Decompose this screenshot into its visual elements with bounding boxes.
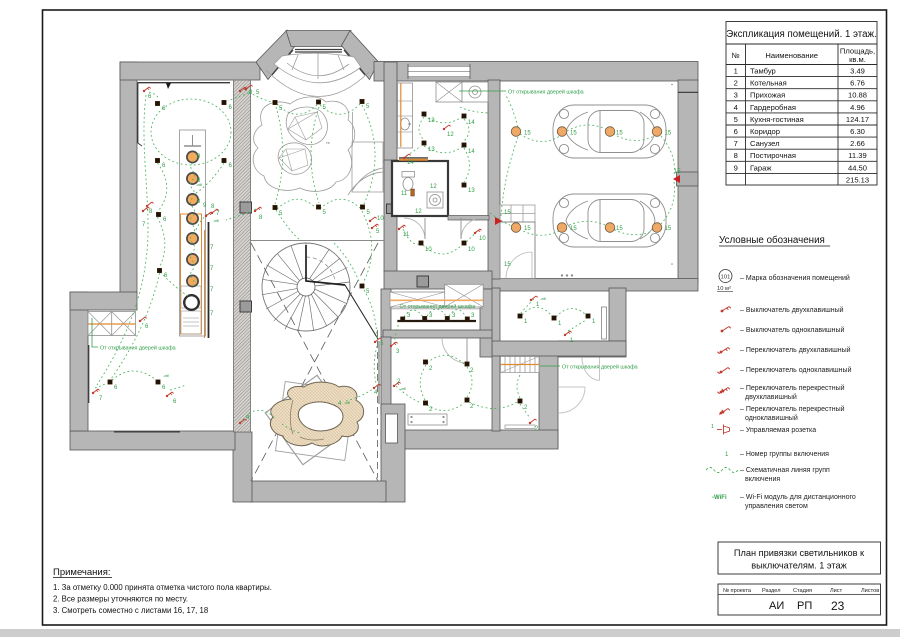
svg-text:-WiFi: -WiFi bbox=[712, 495, 727, 501]
svg-text:Кухня-гостиная: Кухня-гостиная bbox=[750, 115, 804, 124]
svg-text:12: 12 bbox=[430, 184, 437, 190]
svg-text:Условные обозначения: Условные обозначения bbox=[719, 235, 825, 246]
svg-text:1. За отметку 0.000 принята: 1. За отметку 0.000 принята отметка чист… bbox=[53, 583, 272, 592]
svg-text:8: 8 bbox=[734, 151, 738, 160]
svg-text:3. Смотреть соместно с листа: 3. Смотреть соместно с листами 16, 17, 1… bbox=[53, 606, 208, 615]
svg-text:15: 15 bbox=[616, 226, 623, 232]
svg-text:-wifi: -wifi bbox=[196, 183, 202, 187]
svg-text:14: 14 bbox=[407, 160, 414, 166]
svg-text:10.88: 10.88 bbox=[848, 91, 867, 100]
svg-text:Постирочная: Постирочная bbox=[750, 151, 796, 160]
svg-text:– Марка обозначения помещений: – Марка обозначения помещений bbox=[740, 274, 850, 282]
svg-text:13: 13 bbox=[468, 188, 475, 194]
svg-text:15: 15 bbox=[665, 131, 672, 137]
svg-text:7: 7 bbox=[734, 139, 738, 148]
svg-text:3.49: 3.49 bbox=[850, 67, 865, 76]
svg-text:10: 10 bbox=[377, 216, 384, 222]
svg-text:4: 4 bbox=[734, 103, 738, 112]
svg-text:2. Все размеры уточняются по: 2. Все размеры уточняются по месту. bbox=[53, 595, 188, 604]
svg-text:Наименование: Наименование bbox=[765, 51, 818, 60]
svg-text:– Управляемая розетка: – Управляемая розетка bbox=[740, 427, 816, 434]
svg-text:6: 6 bbox=[734, 127, 738, 136]
svg-text:14: 14 bbox=[468, 120, 475, 126]
svg-text:215.13: 215.13 bbox=[846, 175, 869, 184]
svg-text:От открывания дверей шкафа: От открывания дверей шкафа bbox=[508, 89, 584, 96]
svg-text:-wifi: -wifi bbox=[540, 297, 546, 301]
svg-text:15: 15 bbox=[616, 131, 623, 137]
svg-text:-wifi: -wifi bbox=[213, 219, 219, 223]
svg-text:23: 23 bbox=[831, 599, 845, 613]
svg-text:Лист: Лист bbox=[830, 588, 843, 594]
svg-text:101: 101 bbox=[721, 275, 731, 281]
svg-text:13: 13 bbox=[428, 118, 435, 124]
svg-text:АИ: АИ bbox=[769, 600, 784, 612]
svg-text:Тамбур: Тамбур bbox=[750, 67, 776, 76]
svg-text:Гараж: Гараж bbox=[750, 163, 772, 172]
svg-text:15: 15 bbox=[570, 131, 577, 137]
svg-text:РП: РП bbox=[797, 600, 812, 612]
svg-text:тв: тв bbox=[326, 141, 330, 145]
svg-text:-wifi: -wifi bbox=[400, 387, 406, 391]
svg-text:Экспликация помещений. 1 этаж.: Экспликация помещений. 1 этаж. bbox=[726, 29, 876, 40]
svg-text:2: 2 bbox=[734, 79, 738, 88]
svg-text:Стадия: Стадия bbox=[793, 588, 812, 594]
svg-text:9: 9 bbox=[734, 163, 738, 172]
svg-text:15: 15 bbox=[504, 210, 511, 216]
svg-text:6.76: 6.76 bbox=[850, 79, 865, 88]
svg-text:– Переключатель одноклавишный: – Переключатель одноклавишный bbox=[740, 366, 852, 374]
svg-text:-wifi: -wifi bbox=[163, 374, 169, 378]
svg-text:15: 15 bbox=[524, 226, 531, 232]
svg-text:Гардеробная: Гардеробная bbox=[750, 103, 796, 112]
svg-text:От открывания дверей шкафа: От открывания дверей шкафа bbox=[100, 345, 176, 352]
svg-text:10 м²: 10 м² bbox=[717, 286, 731, 292]
svg-text:1: 1 bbox=[734, 67, 738, 76]
svg-text:План привязки светильников к: План привязки светильников к bbox=[734, 548, 865, 558]
svg-text:12: 12 bbox=[447, 132, 454, 138]
svg-text:включения: включения bbox=[745, 476, 780, 483]
svg-text:10: 10 bbox=[468, 247, 475, 253]
svg-text:6.30: 6.30 bbox=[850, 127, 865, 136]
svg-text:– Переключатель перекрестный: – Переключатель перекрестный bbox=[740, 384, 845, 392]
svg-text:№: № bbox=[732, 51, 740, 60]
svg-text:– Переключатель перекрестный: – Переключатель перекрестный bbox=[740, 405, 845, 413]
svg-text:Котельная: Котельная bbox=[750, 79, 787, 88]
svg-text:– Выключатель одноклавишный: – Выключатель одноклавишный bbox=[740, 326, 845, 334]
svg-text:– Wi-Fi модуль для дистанционн: – Wi-Fi модуль для дистанционного bbox=[740, 494, 856, 501]
svg-text:10: 10 bbox=[425, 247, 432, 253]
svg-text:Примечания:: Примечания: bbox=[53, 567, 111, 578]
svg-text:-wifi: -wifi bbox=[344, 401, 350, 405]
svg-text:Коридор: Коридор bbox=[750, 127, 780, 136]
svg-text:4.96: 4.96 bbox=[850, 103, 865, 112]
svg-text:Прихожая: Прихожая bbox=[750, 91, 785, 100]
svg-text:11: 11 bbox=[403, 232, 410, 238]
svg-text:11.39: 11.39 bbox=[848, 151, 866, 160]
svg-text:От открывания дверей шкафа: От открывания дверей шкафа bbox=[562, 364, 638, 371]
svg-text:12: 12 bbox=[415, 209, 422, 215]
svg-text:От открывания дверей шкафа: От открывания дверей шкафа bbox=[400, 303, 476, 310]
svg-text:11: 11 bbox=[401, 191, 408, 197]
svg-text:15: 15 bbox=[524, 131, 531, 137]
svg-text:124.17: 124.17 bbox=[846, 115, 869, 124]
svg-text:– Схематичная линяя групп: – Схематичная линяя групп bbox=[740, 467, 830, 474]
svg-text:– Номер группы включения: – Номер группы включения bbox=[740, 451, 829, 458]
svg-text:5: 5 bbox=[734, 115, 738, 124]
svg-text:– Переключатель двухклавишный: – Переключатель двухклавишный bbox=[740, 346, 851, 354]
svg-text:Листов: Листов bbox=[861, 588, 879, 594]
svg-text:44.50: 44.50 bbox=[848, 163, 867, 172]
svg-text:двухклавишный: двухклавишный bbox=[745, 393, 797, 401]
svg-text:13: 13 bbox=[428, 147, 435, 153]
svg-text:15: 15 bbox=[674, 169, 681, 175]
svg-text:кв.м.: кв.м. bbox=[849, 55, 866, 64]
svg-text:Санузел: Санузел bbox=[750, 139, 780, 148]
svg-text:15: 15 bbox=[665, 226, 672, 232]
svg-text:Раздел: Раздел bbox=[762, 588, 781, 594]
svg-text:одноклавишный: одноклавишный bbox=[745, 414, 798, 422]
svg-text:управления светом: управления светом bbox=[745, 503, 808, 510]
svg-text:10: 10 bbox=[479, 236, 486, 242]
svg-text:15: 15 bbox=[570, 226, 577, 232]
svg-text:выключателям. 1 этаж: выключателям. 1 этаж bbox=[751, 561, 847, 571]
svg-text:3: 3 bbox=[734, 91, 738, 100]
svg-text:14: 14 bbox=[468, 149, 475, 155]
svg-text:№ проекта: № проекта bbox=[723, 588, 752, 594]
svg-text:1: 1 bbox=[711, 424, 714, 430]
svg-text:– Выключатель двухклавишный: – Выключатель двухклавишный bbox=[740, 306, 844, 314]
svg-text:15: 15 bbox=[504, 262, 511, 268]
svg-text:2.66: 2.66 bbox=[850, 139, 865, 148]
